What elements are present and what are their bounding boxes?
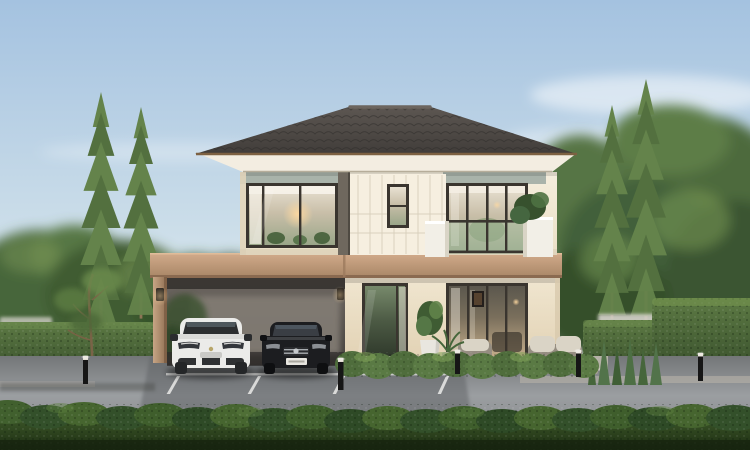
carport-ceiling — [167, 277, 345, 289]
fascia — [197, 153, 577, 172]
sedan-mirror-right — [325, 335, 332, 341]
suv-grille — [200, 352, 222, 358]
second-floor — [240, 168, 557, 257]
sedan-star-badge — [293, 348, 298, 353]
front-hedge-row — [335, 351, 599, 379]
foreground-hedge — [0, 400, 750, 450]
sedan-headlight-left — [266, 344, 280, 349]
suv-bumper-intake — [178, 358, 244, 365]
sedan-mirror-left — [260, 335, 267, 341]
architectural-render-image — [0, 0, 750, 450]
sedan-license-plate — [286, 358, 307, 365]
suv-wheel-right — [235, 362, 247, 374]
sedan-headlight-right — [312, 344, 326, 349]
suv-wheel-left — [175, 362, 187, 374]
suv-mirror-left — [170, 334, 178, 341]
house-wall-lamp — [332, 286, 348, 304]
corner-window — [246, 183, 338, 248]
scene-canvas — [0, 0, 750, 450]
carport-post-lamp — [151, 286, 169, 306]
hedge-ground-shadow — [0, 383, 155, 391]
interior-sofa-silhouette — [492, 332, 522, 352]
narrow-window — [387, 184, 409, 228]
sedan-grille — [283, 347, 309, 356]
sedan-wheel-left — [264, 363, 275, 374]
balcony-parapet-right — [523, 217, 553, 257]
sedan-wheel-right — [317, 363, 328, 374]
interior-lamp-glow — [283, 199, 313, 229]
interior-lamp — [513, 299, 520, 306]
entrance-door — [358, 283, 408, 359]
suv-badge — [209, 347, 213, 351]
suv-mirror-right — [244, 334, 252, 341]
